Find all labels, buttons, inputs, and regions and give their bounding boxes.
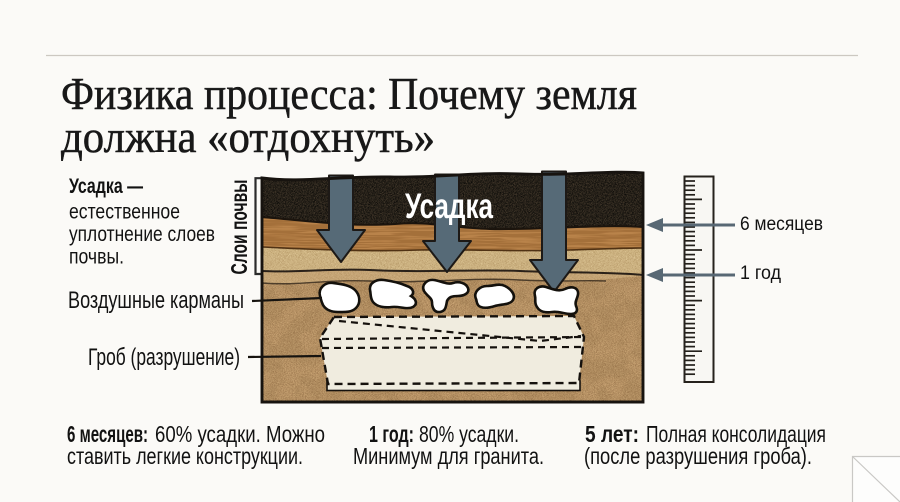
svg-text:Воздушные карманы: Воздушные карманы bbox=[68, 287, 244, 314]
svg-text:Усадка: Усадка bbox=[405, 187, 493, 226]
svg-text:ставить легкие конструкции.: ставить легкие конструкции. bbox=[67, 443, 303, 469]
svg-text:почвы.: почвы. bbox=[69, 246, 124, 269]
svg-text:Слои почвы: Слои почвы bbox=[226, 180, 252, 275]
svg-text:1 год: 1 год bbox=[740, 263, 781, 284]
svg-text:Усадка —: Усадка — bbox=[69, 175, 143, 198]
svg-text:Гроб (разрушение): Гроб (разрушение) bbox=[88, 344, 240, 371]
svg-text:(после разрушения гроба).: (после разрушения гроба). bbox=[584, 443, 812, 469]
svg-text:уплотнение слоев: уплотнение слоев bbox=[69, 223, 215, 246]
svg-text:естественное: естественное bbox=[69, 201, 180, 224]
svg-text:6 месяцев: 6 месяцев bbox=[740, 214, 823, 235]
svg-text:должна «отдохнуть»: должна «отдохнуть» bbox=[61, 111, 435, 162]
svg-text:Минимум для гранита.: Минимум для гранита. bbox=[353, 443, 544, 469]
